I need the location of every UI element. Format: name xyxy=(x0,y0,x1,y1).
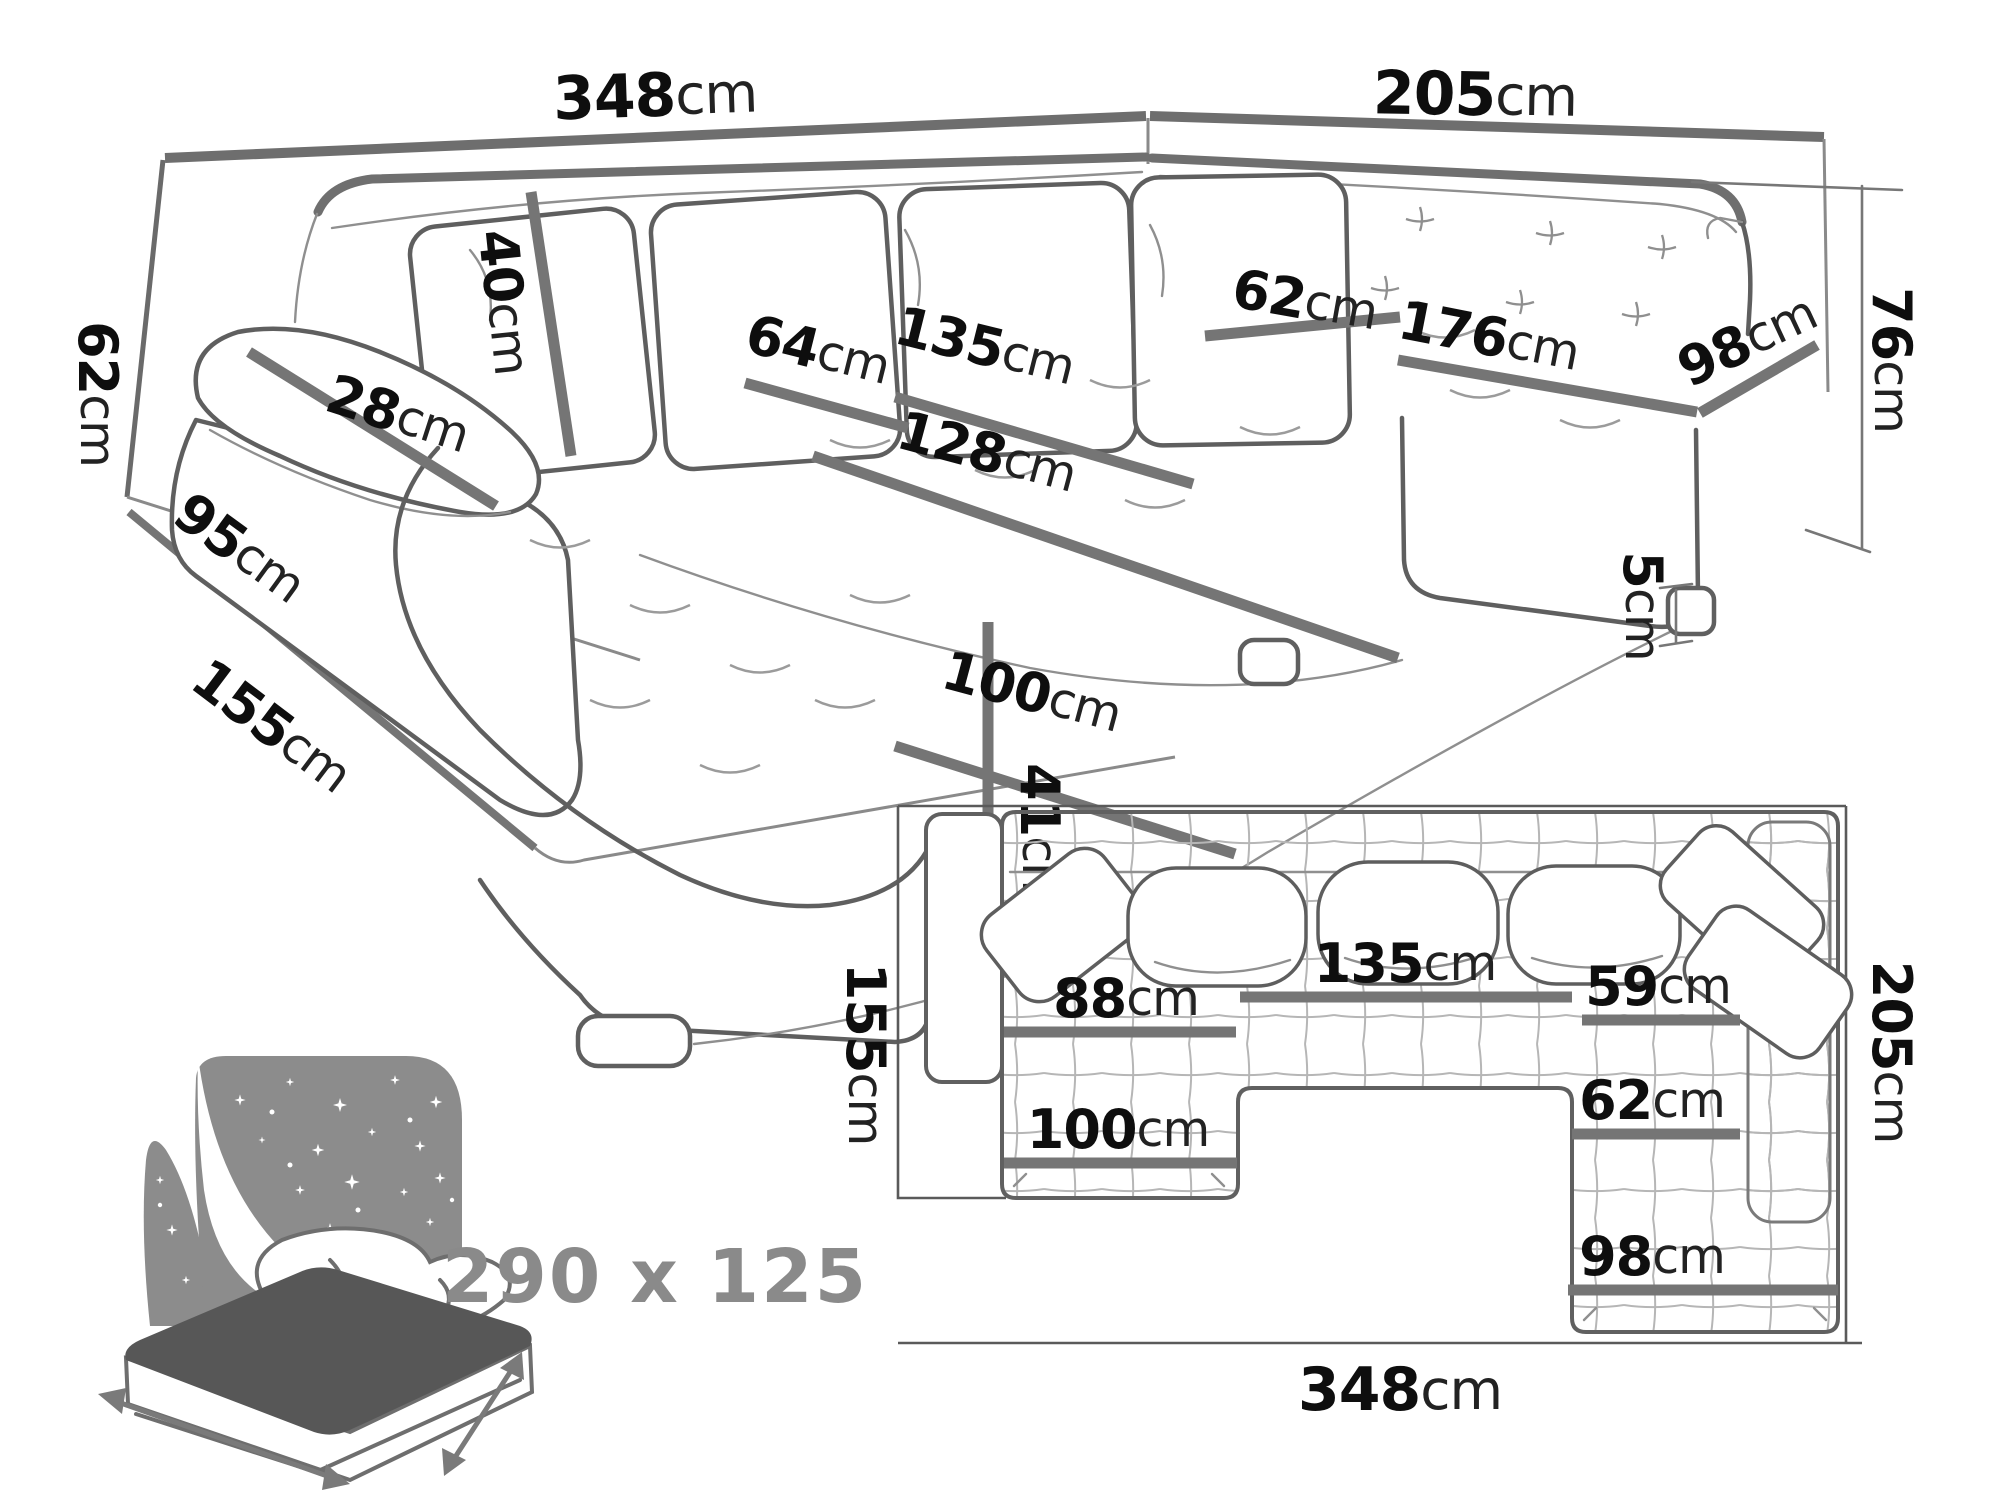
plan-dim-right-end-width: 98cm xyxy=(1579,1225,1725,1288)
plan-dim-depth-left: 155cm xyxy=(835,963,898,1145)
bar-128cm xyxy=(813,456,1398,658)
wall-left-edge xyxy=(127,160,163,497)
plan-view: 155cm 135cm 88cm 59cm 62cm 100cm 98cm 20… xyxy=(835,806,1924,1425)
wall-right-edge xyxy=(1824,139,1828,392)
dim-back-width: 348cm xyxy=(552,57,758,134)
plan-dim-total-width: 348cm xyxy=(1298,1355,1502,1425)
foot xyxy=(578,1016,690,1066)
sofa-dimension-diagram: 348cm 205cm 40cm 28cm 64cm 135cm 128cm 6… xyxy=(0,0,2000,1500)
plan-dim-middle-width: 135cm xyxy=(1314,932,1496,995)
dim-right-width: 205cm xyxy=(1372,58,1577,132)
plan-dim-left-seat-width: 88cm xyxy=(1053,967,1199,1030)
foot xyxy=(1240,640,1298,684)
dim-right-length: 176cm xyxy=(1393,288,1584,385)
plan-dim-chaise-width: 100cm xyxy=(1027,1098,1209,1161)
back-left-end xyxy=(295,214,317,322)
plan-dim-right-seat-width: 59cm xyxy=(1585,955,1731,1018)
dim-arm-height: 62cm xyxy=(67,321,130,467)
dim-back-height: 76cm xyxy=(1861,287,1924,433)
diagram-canvas: 348cm 205cm 40cm 28cm 64cm 135cm 128cm 6… xyxy=(0,0,2000,1500)
plan-pillow xyxy=(1128,868,1306,986)
plan-dim-total-depth: 205cm xyxy=(1861,961,1924,1143)
sleeping-area-size-label: 290 x 125 xyxy=(442,1234,868,1320)
sleeping-function-icon: 290 x 125 xyxy=(98,1056,868,1490)
plan-dim-right-seat-depth: 62cm xyxy=(1579,1069,1725,1132)
dim-chaise-width: 100cm xyxy=(936,638,1129,746)
dim-leg-height: 5cm xyxy=(1612,551,1675,660)
